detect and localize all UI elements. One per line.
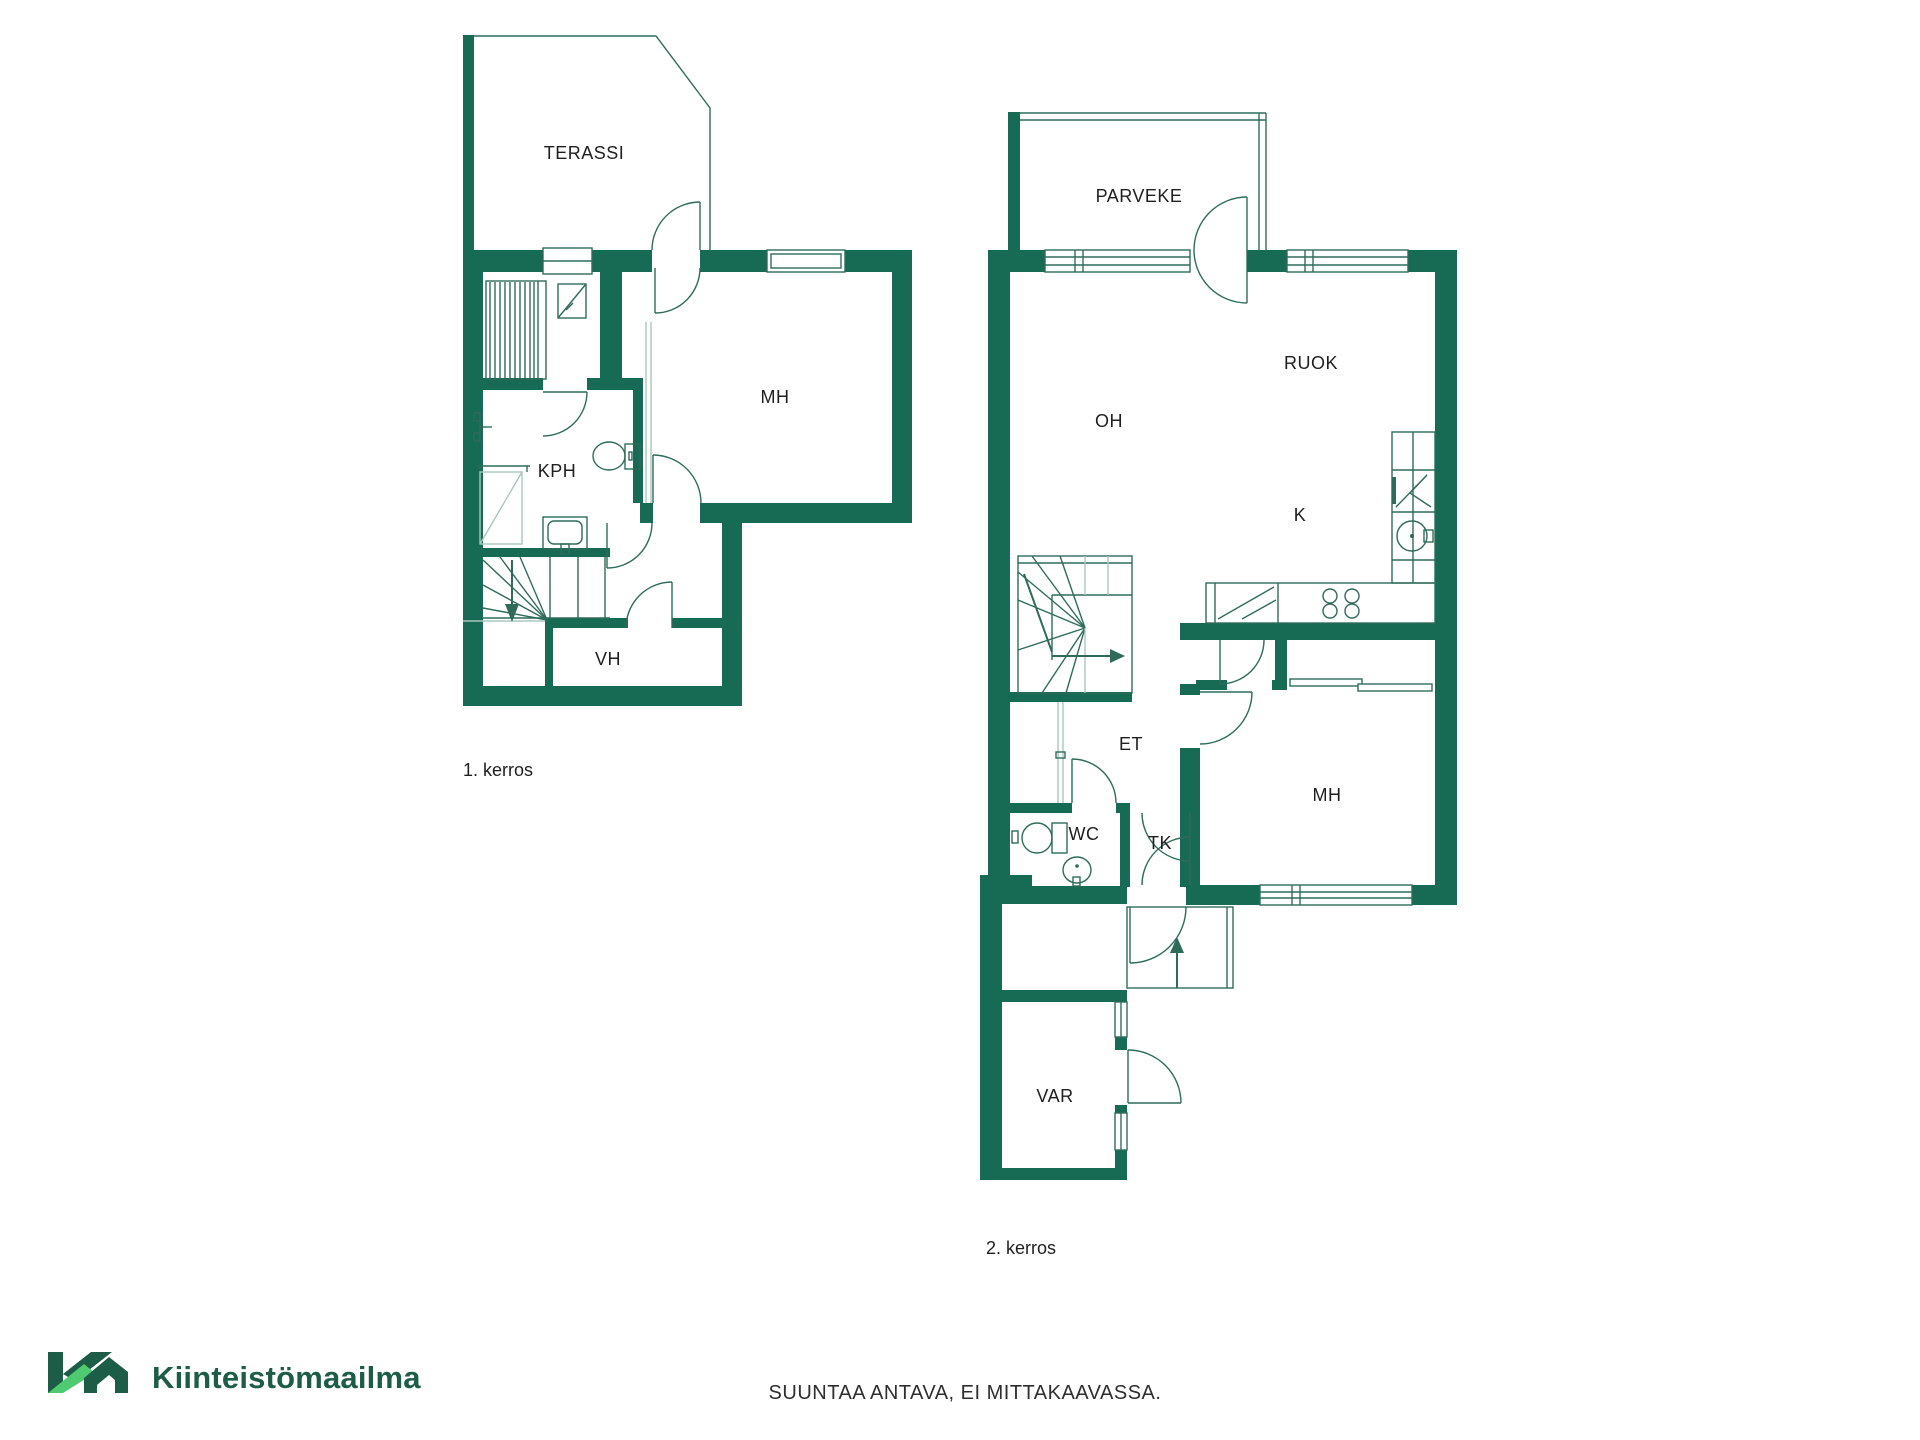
window-symbol-mh2 [1260, 885, 1412, 905]
door-arc-hall [607, 523, 652, 568]
room-label-kph: KPH [538, 461, 577, 481]
room-label-mh1: MH [761, 387, 790, 407]
sauna-bench-symbol [486, 281, 546, 379]
room-label-ruok: RUOK [1284, 353, 1338, 373]
brand-name: Kiinteistömaailma [152, 1360, 421, 1395]
window-symbol-var-upper [1115, 1002, 1127, 1037]
partition-wall-et [1056, 702, 1065, 803]
disclaimer-text: SUUNTAA ANTAVA, EI MITTAKAAVASSA. [769, 1382, 1162, 1404]
room-label-vh: VH [595, 649, 621, 669]
stair-direction-arrow [1110, 649, 1125, 663]
floorplan-drawing: TERASSI MH KPH VH 1. kerros [0, 0, 1920, 1440]
door-arc-balcony [1194, 197, 1247, 303]
door-arc-mh2 [1200, 692, 1252, 744]
door-arc-vh [626, 582, 672, 628]
door-arc-mh1 [653, 455, 701, 503]
window-symbol-var-lower [1115, 1113, 1127, 1150]
sauna-stove-symbol [558, 284, 586, 318]
floorplan-page: TERASSI MH KPH VH 1. kerros [0, 0, 1920, 1440]
sink-symbol-wc [1063, 857, 1091, 886]
door-arc-vestibule [655, 268, 700, 313]
room-label-var: VAR [1036, 1086, 1073, 1106]
door-arc-closet2 [1220, 640, 1264, 684]
sink-symbol-kph [543, 517, 587, 554]
window-symbol-sauna [543, 248, 592, 274]
door-arc-wc [1072, 759, 1116, 803]
floor2-plan: PARVEKE OH RUOK K ET WC TK MH VAR 2. ker… [980, 112, 1457, 1258]
toilet-symbol-kph [593, 442, 640, 470]
room-label-k: K [1294, 505, 1307, 525]
floor1-caption: 1. kerros [463, 760, 533, 780]
stove-symbol [1323, 589, 1359, 618]
floor1-plan: TERASSI MH KPH VH 1. kerros [463, 35, 912, 780]
window-symbol-oh [1045, 250, 1190, 272]
toilet-symbol-wc [1012, 823, 1067, 853]
room-label-mh2: MH [1313, 785, 1342, 805]
room-label-terassi: TERASSI [544, 143, 625, 163]
wardrobe-symbol [1290, 679, 1432, 691]
room-label-wc: WC [1069, 824, 1100, 844]
entry-steps-symbol [1127, 907, 1233, 988]
window-symbol-ruok [1287, 250, 1408, 272]
vanity-symbol [477, 466, 530, 544]
brand-logo: Kiinteistömaailma [48, 1352, 421, 1395]
entry-direction-arrow [1170, 937, 1184, 953]
fridge-symbol [1392, 475, 1431, 507]
partition-wall [646, 322, 651, 503]
kitchen-counter-symbol [1206, 432, 1435, 623]
balcony-outline [1008, 112, 1266, 250]
room-label-parveke: PARVEKE [1096, 186, 1183, 206]
kitchen-sink-symbol [1397, 521, 1433, 551]
staircase-up-symbol [1018, 556, 1132, 693]
floor2-walls [980, 250, 1457, 1180]
staircase-down-symbol [463, 557, 610, 622]
window-symbol-mh1 [767, 250, 845, 272]
door-arc-terrace [652, 202, 700, 250]
door-arc-sauna [543, 392, 587, 436]
room-label-oh: OH [1095, 411, 1123, 431]
room-label-et: ET [1119, 734, 1143, 754]
floor2-caption: 2. kerros [986, 1238, 1056, 1258]
door-arc-var [1128, 1050, 1181, 1103]
room-label-tk: TK [1148, 833, 1172, 853]
